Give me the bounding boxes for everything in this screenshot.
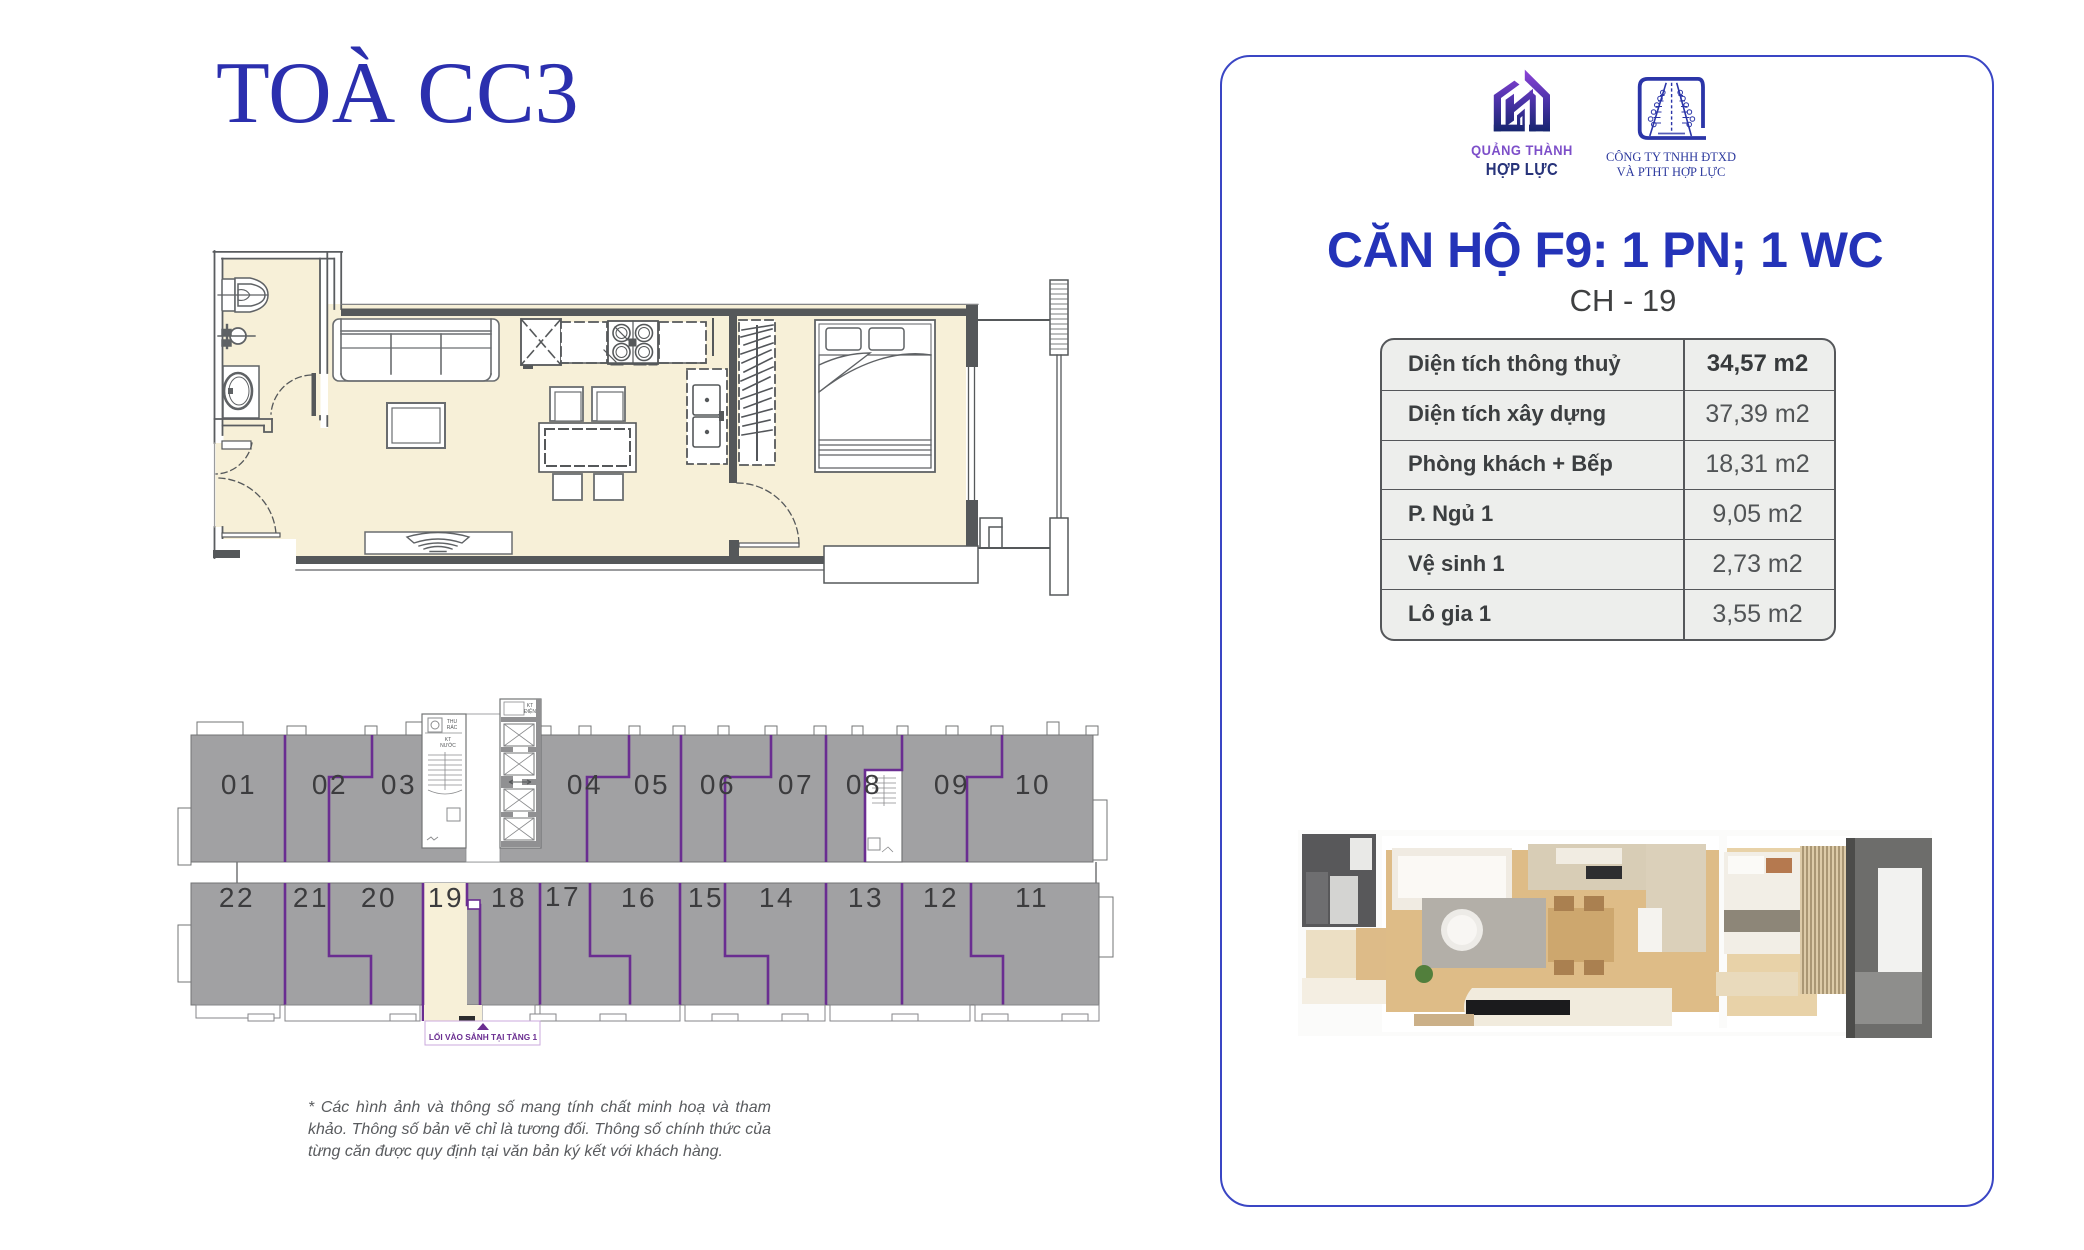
svg-text:01: 01 <box>221 769 257 800</box>
svg-text:09: 09 <box>934 769 970 800</box>
svg-text:22: 22 <box>219 882 255 913</box>
svg-text:13: 13 <box>848 882 884 913</box>
svg-text:02: 02 <box>312 769 348 800</box>
svg-text:06: 06 <box>700 769 736 800</box>
svg-text:RÁC: RÁC <box>447 724 458 731</box>
svg-text:16: 16 <box>621 882 657 913</box>
svg-text:17: 17 <box>545 881 581 912</box>
svg-text:11: 11 <box>1015 882 1049 913</box>
svg-text:12: 12 <box>923 882 959 913</box>
svg-text:ĐIỆN: ĐIỆN <box>524 707 536 715</box>
svg-text:NƯỚC: NƯỚC <box>440 742 456 749</box>
svg-text:19: 19 <box>428 882 464 913</box>
svg-text:05: 05 <box>634 769 670 800</box>
svg-text:03: 03 <box>381 769 417 800</box>
svg-text:18: 18 <box>491 882 527 913</box>
svg-text:10: 10 <box>1015 769 1051 800</box>
svg-text:21: 21 <box>293 882 329 913</box>
svg-text:LỐI VÀO SẢNH TẠI TẦNG 1: LỐI VÀO SẢNH TẠI TẦNG 1 <box>429 1031 538 1042</box>
svg-text:08: 08 <box>846 769 882 800</box>
svg-text:15: 15 <box>688 882 724 913</box>
svg-text:07: 07 <box>778 769 814 800</box>
svg-text:14: 14 <box>759 882 795 913</box>
svg-text:04: 04 <box>567 769 603 800</box>
svg-text:20: 20 <box>361 882 397 913</box>
